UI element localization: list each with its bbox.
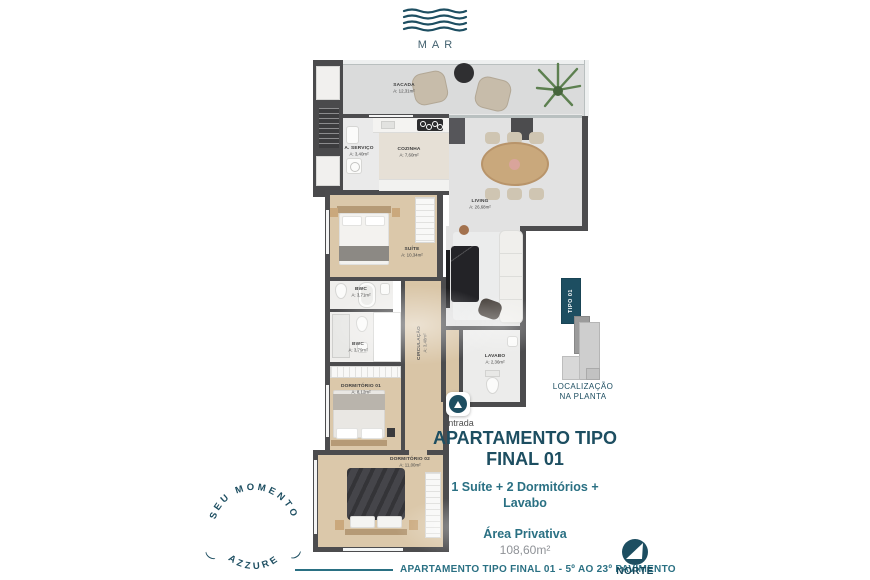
kitchen-cabinet — [379, 179, 449, 191]
private-area-value: 108,60m² — [425, 543, 625, 557]
nightstand — [387, 428, 395, 437]
room-label-servico: A. SERVIÇOA: 3,40m² — [344, 146, 373, 158]
washer-door — [350, 162, 360, 172]
entrance-label: Entrada — [430, 418, 486, 428]
wall-segment — [437, 195, 443, 277]
stamp-paren-left: ( — [202, 550, 216, 561]
wall-segment — [582, 116, 588, 226]
bedroom1-headboard — [331, 440, 387, 446]
round-table — [454, 63, 474, 83]
core-panel — [316, 156, 340, 186]
window-strip — [326, 210, 329, 254]
watermark — [453, 295, 548, 355]
compass-label: NORTE — [611, 566, 659, 577]
svg-text:SEU MOMENTO: SEU MOMENTO — [208, 482, 301, 521]
brand-logo: MAR — [399, 8, 471, 51]
pillow — [365, 216, 385, 226]
kitchen-sink — [381, 121, 395, 129]
cooktop-burner — [426, 124, 432, 130]
wall-segment — [401, 366, 405, 450]
dining-chair — [529, 188, 544, 200]
nightstand — [335, 520, 344, 530]
location-block — [562, 356, 580, 380]
unit-title-line1: APARTAMENTO TIPO — [425, 428, 625, 449]
window-strip — [314, 460, 317, 534]
window-strip — [326, 385, 329, 437]
unit-features-line2: Lavabo — [425, 496, 625, 512]
dining-chair — [529, 132, 544, 144]
wall-segment — [470, 402, 526, 407]
stamp-bottom-text: AZZURE — [226, 553, 282, 572]
room-label-dormitorio2: DORMITÓRIO 02A: 11,00m² — [390, 457, 430, 469]
room-label-living: LIVINGA: 26,68m² — [469, 199, 491, 211]
bedroom1-wardrobe — [330, 366, 401, 378]
laundry-tank — [346, 126, 359, 144]
suite-bed-headboard — [337, 206, 391, 213]
toilet-tank — [485, 370, 500, 377]
table-bowl — [509, 159, 520, 170]
entrance-marker — [446, 392, 470, 416]
core-panel — [316, 66, 340, 100]
location-caption: LOCALIZAÇÃO NA PLANTA — [546, 382, 620, 402]
room-label-sacada: SACADAA: 12,31m² — [393, 83, 415, 95]
window-strip — [343, 548, 403, 551]
nightstand — [392, 208, 400, 217]
pillow — [336, 428, 358, 439]
stairs — [319, 108, 339, 148]
brand-name: MAR — [399, 39, 471, 51]
pillow — [361, 428, 383, 439]
entrance-arrow-icon — [449, 395, 467, 413]
room-label-dormitorio1: DORMITÓRIO 01A: 8,12m² — [341, 384, 381, 396]
suite-wardrobe — [415, 197, 435, 243]
nightstand — [330, 208, 338, 217]
pillow — [350, 516, 375, 528]
pillow — [342, 216, 362, 226]
location-block — [586, 368, 600, 380]
waves-icon — [402, 8, 468, 32]
bed-throw — [333, 394, 385, 410]
wall-segment — [520, 226, 588, 231]
dining-chair — [485, 132, 500, 144]
location-diagram: TIPO 01 LOCALIZAÇÃO NA PLANTA — [546, 272, 620, 404]
window-strip — [369, 115, 413, 117]
brand-stamp: SEU MOMENTO AZZURE ( ) — [198, 478, 310, 580]
fridge — [449, 118, 465, 144]
side-table — [459, 225, 469, 235]
cooktop-burner — [437, 124, 443, 130]
room-label-cozinha: COZINHAA: 7,60m² — [398, 147, 421, 159]
unit-features-line1: 1 Suíte + 2 Dormitórios + — [425, 480, 625, 496]
location-unit-label: TIPO 01 — [568, 289, 574, 313]
plant-icon — [531, 60, 585, 116]
compass-icon — [621, 538, 649, 566]
svg-text:AZZURE: AZZURE — [226, 553, 282, 572]
room-label-suite: SUÍTEA: 10,34m² — [401, 247, 423, 259]
stamp-top-text: SEU MOMENTO — [208, 482, 301, 521]
unit-info: APARTAMENTO TIPO FINAL 01 1 Suíte + 2 Do… — [425, 428, 625, 557]
unit-title-line2: FINAL 01 — [425, 449, 625, 470]
private-area-label: Área Privativa — [425, 527, 625, 541]
dining-chair — [507, 188, 522, 200]
wall-segment — [325, 277, 446, 281]
footer-rule — [295, 569, 393, 571]
page: MAR — [0, 0, 870, 580]
bed-throw — [339, 246, 389, 261]
stamp-paren-right: ) — [291, 550, 305, 561]
